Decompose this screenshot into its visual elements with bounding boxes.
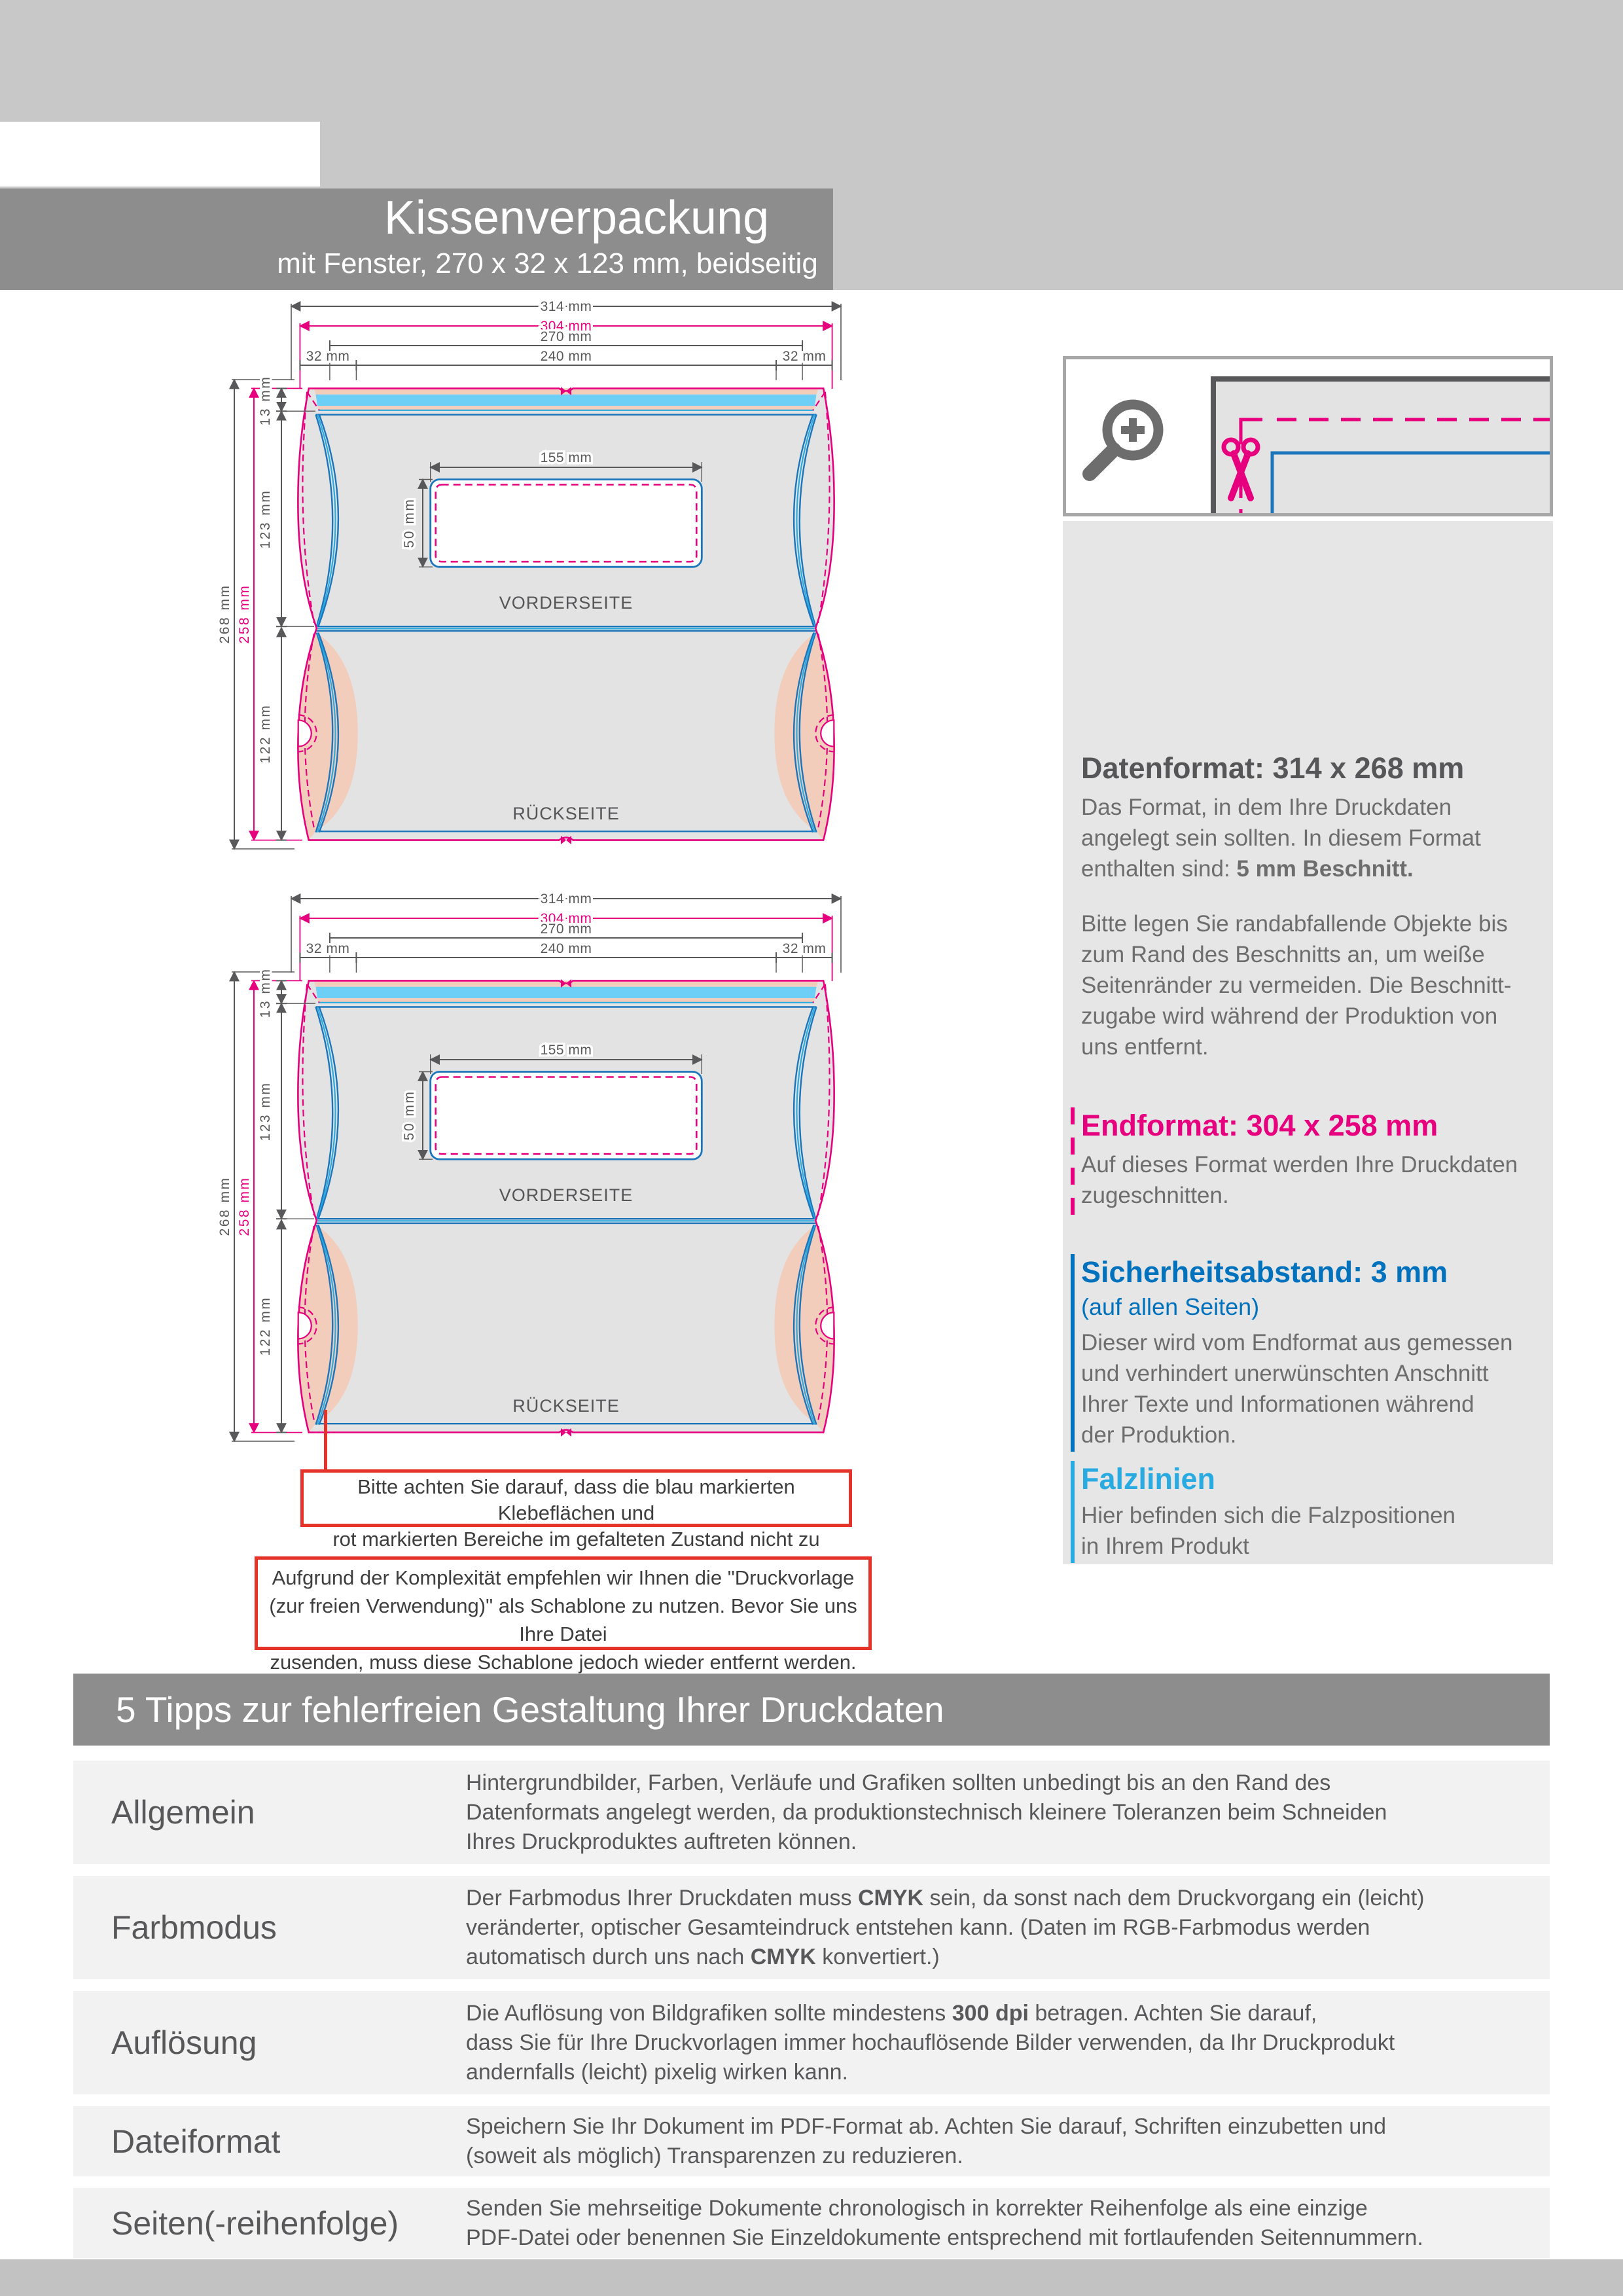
page-title: Kissenverpackung — [320, 191, 833, 245]
svg-text:32 mm: 32 mm — [783, 349, 827, 364]
svg-text:VORDERSEITE: VORDERSEITE — [499, 593, 633, 613]
datasheet-page: Datenblatt Kissenverpackung mit Fenster,… — [0, 0, 1623, 2296]
falzlinien-accent-line — [1071, 1461, 1075, 1563]
svg-text:240 mm: 240 mm — [541, 941, 592, 956]
tip-row-3: AuflösungDie Auflösung von Bildgrafiken … — [73, 1991, 1550, 2094]
tip-row-text: Speichern Sie Ihr Dokument im PDF-Format… — [466, 2112, 1550, 2171]
svg-text:123 mm: 123 mm — [258, 1082, 273, 1141]
warning-box-template: Aufgrund der Komplexität empfehlen wir I… — [255, 1556, 872, 1650]
tip-row-4: DateiformatSpeichern Sie Ihr Dokument im… — [73, 2106, 1550, 2176]
dieline-diagram-top: VORDERSEITERÜCKSEITE314 mm304 mm270 mm32… — [216, 295, 851, 857]
corner-detail-illustration — [1066, 359, 1550, 513]
sicherheitsabstand-heading: Sicherheitsabstand: 3 mm — [1081, 1255, 1533, 1289]
svg-text:13 mm: 13 mm — [258, 376, 273, 426]
tips-banner: 5 Tipps zur fehlerfreien Gestaltung Ihre… — [73, 1674, 1550, 1746]
tip-row-2: FarbmodusDer Farbmodus Ihrer Druckdaten … — [73, 1876, 1550, 1979]
svg-text:50 mm: 50 mm — [402, 1090, 417, 1141]
svg-text:268 mm: 268 mm — [217, 584, 232, 644]
tips-table: AllgemeinHintergrundbilder, Farben, Verl… — [73, 1761, 1550, 2270]
datenformat-text-2: Bitte legen Sie randabfallende Objekte b… — [1081, 908, 1539, 1062]
svg-text:270 mm: 270 mm — [541, 922, 592, 937]
svg-text:50 mm: 50 mm — [402, 498, 417, 548]
doc-label-box: Datenblatt — [0, 122, 320, 187]
svg-text:240 mm: 240 mm — [541, 349, 592, 364]
datenformat-heading: Datenformat: 314 x 268 mm — [1081, 751, 1533, 785]
tip-row-5: Seiten(-reihenfolge)Senden Sie mehrseiti… — [73, 2188, 1550, 2258]
tip-row-label: Auflösung — [73, 2024, 466, 2062]
svg-text:123 mm: 123 mm — [258, 490, 273, 549]
tip-row-label: Farbmodus — [73, 1909, 466, 1946]
sicherheitsabstand-accent-line — [1071, 1254, 1075, 1452]
endformat-accent-line — [1071, 1107, 1075, 1220]
falzlinien-heading: Falzlinien — [1081, 1462, 1533, 1496]
datenformat-text-1: Das Format, in dem Ihre Druckdatenangele… — [1081, 792, 1539, 884]
svg-text:RÜCKSEITE: RÜCKSEITE — [512, 804, 620, 823]
svg-text:258 mm: 258 mm — [237, 584, 252, 644]
falzlinien-text: Hier befinden sich die Falzpositionenin … — [1081, 1500, 1539, 1562]
svg-text:122 mm: 122 mm — [258, 704, 273, 764]
tip-row-1: AllgemeinHintergrundbilder, Farben, Verl… — [73, 1761, 1550, 1864]
page-subtitle: mit Fenster, 270 x 32 x 123 mm, beidseit… — [262, 247, 833, 280]
tip-row-label: Seiten(-reihenfolge) — [73, 2204, 466, 2242]
svg-text:RÜCKSEITE: RÜCKSEITE — [512, 1396, 620, 1416]
svg-text:314 mm: 314 mm — [541, 299, 592, 314]
svg-text:155 mm: 155 mm — [541, 450, 592, 465]
svg-text:270 mm: 270 mm — [541, 329, 592, 344]
corner-detail-box — [1063, 356, 1553, 516]
tip-row-label: Allgemein — [73, 1793, 466, 1831]
svg-text:268 mm: 268 mm — [217, 1177, 232, 1236]
svg-text:122 mm: 122 mm — [258, 1297, 273, 1356]
svg-text:32 mm: 32 mm — [306, 941, 350, 956]
endformat-heading: Endformat: 304 x 258 mm — [1081, 1109, 1533, 1143]
svg-text:155 mm: 155 mm — [541, 1043, 592, 1058]
zoom-icon — [1090, 404, 1158, 474]
tip-row-text: Hintergrundbilder, Farben, Verläufe und … — [466, 1768, 1550, 1857]
svg-text:314 mm: 314 mm — [541, 891, 592, 906]
footer-band — [0, 2259, 1623, 2296]
endformat-text: Auf dieses Format werden Ihre Druckdaten… — [1081, 1149, 1539, 1211]
tip-row-text: Die Auflösung von Bildgrafiken sollte mi… — [466, 1999, 1550, 2087]
warning-box-glue-areas: Bitte achten Sie darauf, dass die blau m… — [300, 1469, 852, 1527]
svg-text:32 mm: 32 mm — [306, 349, 350, 364]
sicherheitsabstand-text: Dieser wird vom Endformat aus gemessenun… — [1081, 1327, 1539, 1450]
svg-text:258 mm: 258 mm — [237, 1177, 252, 1236]
tip-row-text: Senden Sie mehrseitige Dokumente chronol… — [466, 2194, 1550, 2253]
info-panel: Datenformat: 314 x 268 mm Das Format, in… — [1063, 521, 1553, 1564]
tip-row-text: Der Farbmodus Ihrer Druckdaten muss CMYK… — [466, 1884, 1550, 1972]
corner-detail — [1211, 376, 1550, 513]
svg-text:32 mm: 32 mm — [783, 941, 827, 956]
dieline-diagram-bottom: VORDERSEITERÜCKSEITE314 mm304 mm270 mm32… — [216, 887, 851, 1450]
svg-text:13 mm: 13 mm — [258, 968, 273, 1018]
svg-text:VORDERSEITE: VORDERSEITE — [499, 1185, 633, 1205]
tip-row-label: Dateiformat — [73, 2123, 466, 2161]
tips-heading: 5 Tipps zur fehlerfreien Gestaltung Ihre… — [73, 1674, 1550, 1746]
sicherheitsabstand-subheading: (auf allen Seiten) — [1081, 1293, 1533, 1321]
warning-leader-line — [324, 1410, 327, 1469]
